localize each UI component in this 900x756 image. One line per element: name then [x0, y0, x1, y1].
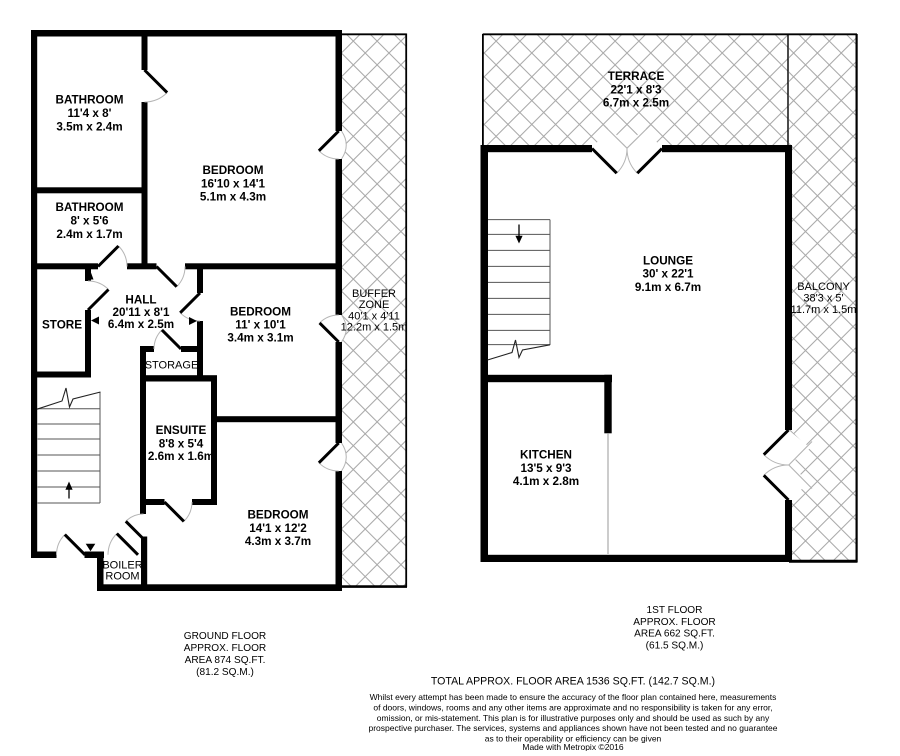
- svg-text:22'1 x 8'3: 22'1 x 8'3: [610, 84, 662, 97]
- svg-text:11'4 x 8': 11'4 x 8': [68, 107, 112, 120]
- svg-text:Whilst every attempt has been: Whilst every attempt has been made to en…: [370, 692, 777, 702]
- svg-text:4.3m x 3.7m: 4.3m x 3.7m: [245, 535, 311, 548]
- svg-text:LOUNGE: LOUNGE: [643, 255, 693, 268]
- svg-text:APPROX. FLOOR: APPROX. FLOOR: [633, 617, 715, 628]
- svg-text:2.6m x 1.6m: 2.6m x 1.6m: [148, 450, 214, 463]
- svg-text:12.2m x 1.5m: 12.2m x 1.5m: [341, 322, 408, 334]
- svg-text:(61.5 SQ.M.): (61.5 SQ.M.): [646, 640, 704, 651]
- svg-text:KITCHEN: KITCHEN: [520, 449, 572, 462]
- svg-text:30' x 22'1: 30' x 22'1: [642, 268, 694, 281]
- svg-text:of doors, windows, rooms and a: of doors, windows, rooms and any other i…: [373, 702, 772, 712]
- svg-text:6.4m x 2.5m: 6.4m x 2.5m: [108, 318, 174, 331]
- svg-text:14'1 x 12'2: 14'1 x 12'2: [249, 522, 307, 535]
- svg-text:GROUND FLOOR: GROUND FLOOR: [184, 631, 266, 642]
- svg-text:prospective purchaser. The ser: prospective purchaser. The services, sys…: [368, 723, 777, 733]
- svg-text:BEDROOM: BEDROOM: [202, 164, 263, 177]
- svg-text:HALL: HALL: [125, 294, 156, 307]
- svg-text:8'8 x 5'4: 8'8 x 5'4: [159, 438, 204, 451]
- svg-text:9.1m x 6.7m: 9.1m x 6.7m: [635, 281, 701, 294]
- svg-text:STORE: STORE: [42, 319, 82, 332]
- svg-text:4.1m x 2.8m: 4.1m x 2.8m: [513, 475, 579, 488]
- svg-text:5.1m x 4.3m: 5.1m x 4.3m: [200, 191, 266, 204]
- svg-text:BALCONY: BALCONY: [797, 281, 850, 293]
- svg-text:ROOM: ROOM: [105, 571, 139, 583]
- svg-text:BATHROOM: BATHROOM: [56, 94, 124, 107]
- svg-text:3.5m x 2.4m: 3.5m x 2.4m: [56, 121, 122, 134]
- svg-text:AREA 662 SQ.FT.: AREA 662 SQ.FT.: [634, 629, 715, 640]
- svg-text:APPROX. FLOOR: APPROX. FLOOR: [184, 643, 266, 654]
- svg-text:BEDROOM: BEDROOM: [247, 509, 308, 522]
- svg-text:BATHROOM: BATHROOM: [56, 201, 124, 214]
- svg-text:omission, or mis-statement. Th: omission, or mis-statement. This plan is…: [377, 713, 770, 723]
- svg-text:ZONE: ZONE: [359, 299, 390, 311]
- svg-text:6.7m x 2.5m: 6.7m x 2.5m: [603, 97, 669, 110]
- svg-text:11.7m x 1.5m: 11.7m x 1.5m: [791, 304, 857, 316]
- svg-text:2.4m x 1.7m: 2.4m x 1.7m: [56, 228, 122, 241]
- svg-text:16'10 x 14'1: 16'10 x 14'1: [201, 178, 266, 191]
- svg-text:AREA 874 SQ.FT.: AREA 874 SQ.FT.: [185, 655, 266, 666]
- svg-text:1ST FLOOR: 1ST FLOOR: [647, 605, 703, 616]
- svg-text:13'5 x 9'3: 13'5 x 9'3: [520, 462, 572, 475]
- svg-text:11' x 10'1: 11' x 10'1: [235, 319, 286, 332]
- svg-text:Made with Metropix ©2016: Made with Metropix ©2016: [522, 742, 624, 751]
- svg-text:3.4m x 3.1m: 3.4m x 3.1m: [227, 332, 293, 345]
- svg-text:ENSUITE: ENSUITE: [156, 424, 207, 437]
- svg-text:8' x 5'6: 8' x 5'6: [70, 215, 109, 228]
- svg-text:TERRACE: TERRACE: [608, 70, 665, 83]
- svg-text:STORAGE: STORAGE: [145, 360, 199, 372]
- svg-text:TOTAL APPROX. FLOOR AREA 1536: TOTAL APPROX. FLOOR AREA 1536 SQ.FT. (14…: [431, 676, 715, 688]
- svg-text:BEDROOM: BEDROOM: [230, 306, 291, 319]
- svg-text:(81.2 SQ.M.): (81.2 SQ.M.): [196, 667, 254, 678]
- svg-text:38'3 x 5': 38'3 x 5': [803, 293, 843, 305]
